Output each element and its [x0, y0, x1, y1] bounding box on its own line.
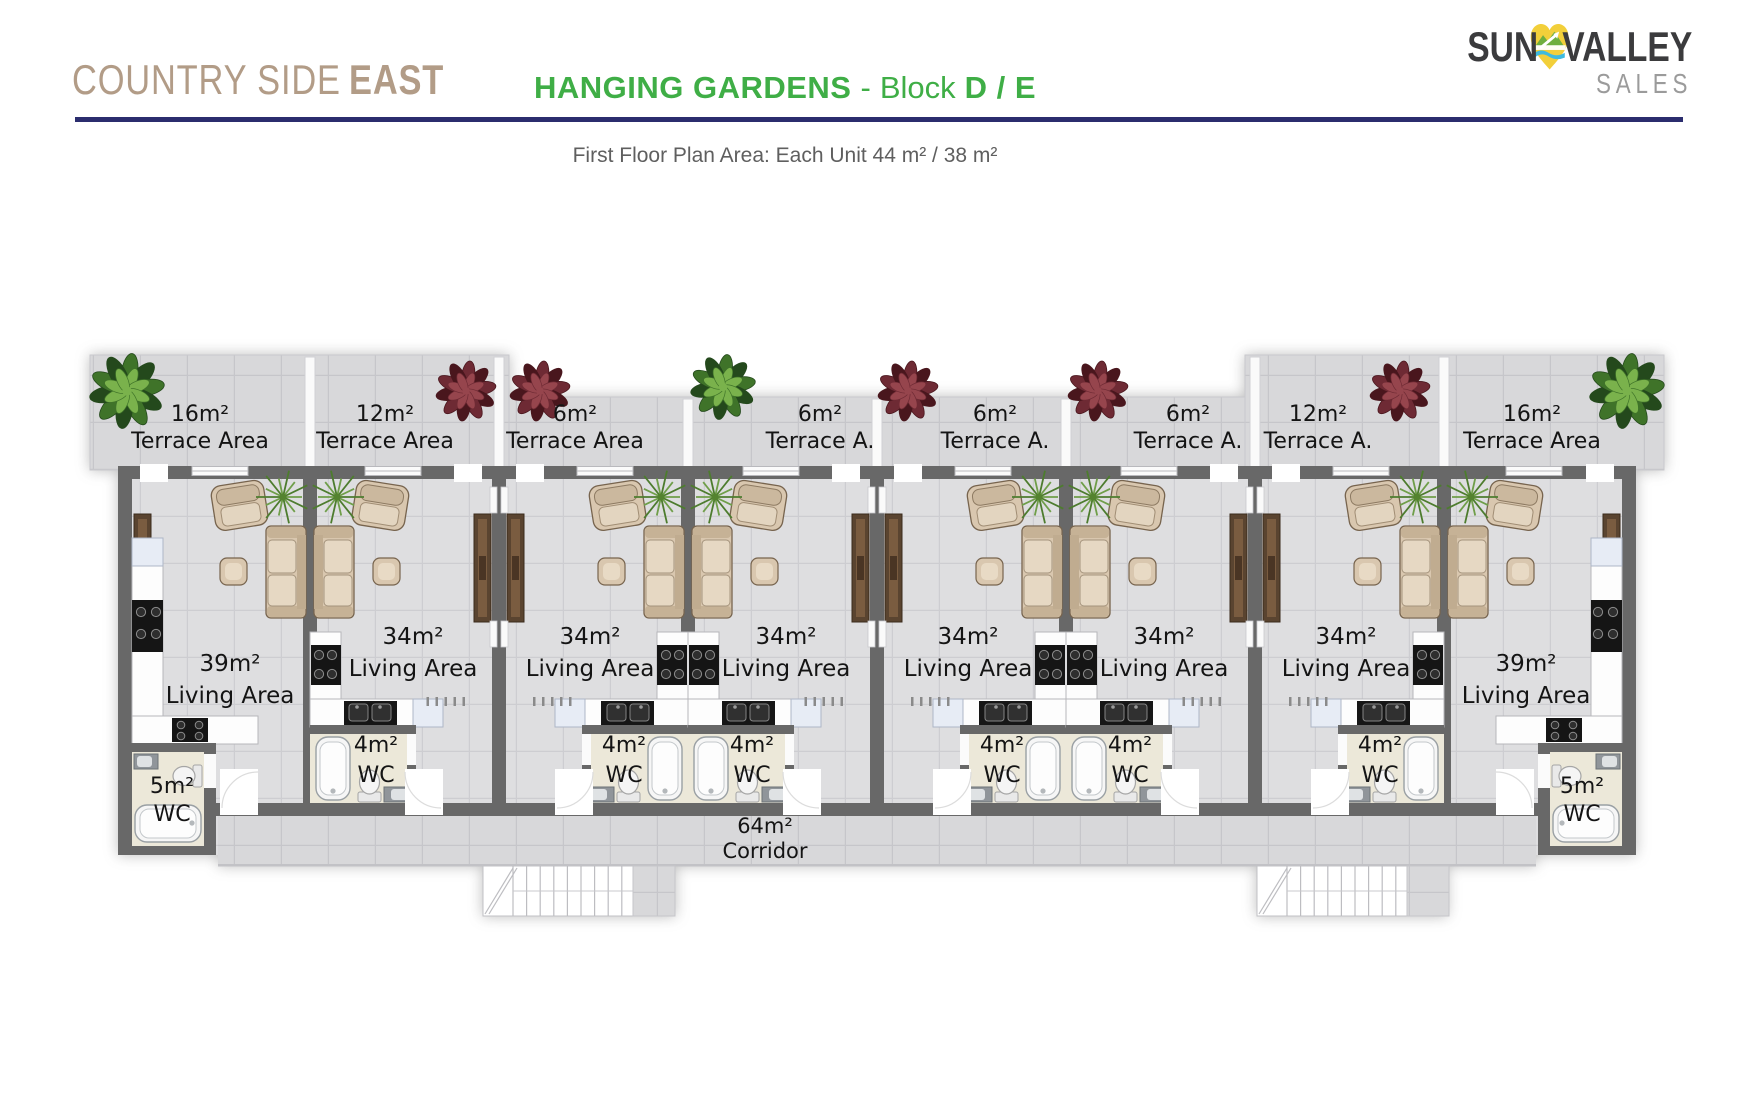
- living-label: Living Area: [1100, 656, 1229, 682]
- window: [365, 467, 421, 476]
- living-label: Living Area: [1462, 683, 1591, 709]
- sideboard: [852, 514, 869, 622]
- side-table-top: [756, 563, 773, 580]
- living-size: 34m²: [560, 624, 621, 650]
- curtain: [501, 621, 508, 647]
- wc-size: 4m²: [730, 733, 774, 758]
- living-size: 34m²: [756, 624, 817, 650]
- window: [743, 467, 799, 476]
- wc-label: WC: [605, 763, 642, 788]
- armchair: [1107, 479, 1166, 532]
- wc-room: [1538, 743, 1636, 855]
- window: [192, 467, 248, 476]
- terrace-door: [894, 464, 922, 482]
- terrace-door: [454, 464, 482, 482]
- living-size: 39m²: [1496, 651, 1557, 677]
- page: COUNTRY SIDEEAST HANGING GARDENS-BlockD …: [0, 0, 1754, 1100]
- wc-label: WC: [1563, 802, 1600, 827]
- terrace-door: [1210, 464, 1238, 482]
- curtain: [501, 487, 508, 513]
- sofa: [314, 526, 354, 618]
- curtain: [868, 621, 875, 647]
- armchair: [1485, 479, 1544, 532]
- armchair: [966, 479, 1025, 532]
- wc-size: 4m²: [354, 733, 398, 758]
- curtain: [1257, 487, 1264, 513]
- terrace-door: [1586, 464, 1614, 482]
- sofa: [692, 526, 732, 618]
- sideboard: [1263, 514, 1280, 622]
- wc-size: 4m²: [602, 733, 646, 758]
- sofa: [1400, 526, 1440, 618]
- sofa: [644, 526, 684, 618]
- terrace-label: Terrace A.: [1133, 429, 1243, 454]
- sideboard: [474, 514, 491, 622]
- terrace-label: Terrace Area: [1462, 429, 1601, 454]
- corridor-size: 64m²: [737, 814, 793, 838]
- living-label: Living Area: [722, 656, 851, 682]
- armchair: [351, 479, 410, 532]
- terrace-size: 6m²: [973, 402, 1017, 427]
- sideboard: [507, 514, 524, 622]
- terrace-label: Terrace A.: [940, 429, 1050, 454]
- window: [1333, 467, 1389, 476]
- terrace-size: 6m²: [553, 402, 597, 427]
- terrace-label: Terrace Area: [505, 429, 644, 454]
- corridor-label: Corridor: [722, 839, 807, 863]
- wc-size: 4m²: [980, 733, 1024, 758]
- side-table-top: [1512, 563, 1529, 580]
- window: [955, 467, 1011, 476]
- living-label: Living Area: [166, 683, 295, 709]
- terrace-size: 6m²: [1166, 402, 1210, 427]
- wc-size: 4m²: [1358, 733, 1402, 758]
- wc-label: WC: [357, 763, 394, 788]
- curtain: [868, 487, 875, 513]
- terrace-door: [516, 464, 544, 482]
- terrace-door: [832, 464, 860, 482]
- living-size: 34m²: [938, 624, 999, 650]
- wc-label: WC: [1111, 763, 1148, 788]
- side-table-top: [603, 563, 620, 580]
- curtain: [1246, 487, 1253, 513]
- window: [577, 467, 633, 476]
- curtain: [490, 487, 497, 513]
- curtain: [879, 487, 886, 513]
- curtain: [490, 621, 497, 647]
- wc-size: 5m²: [1560, 774, 1604, 799]
- armchair: [729, 479, 788, 532]
- sideboard: [885, 514, 902, 622]
- curtain: [1257, 621, 1264, 647]
- armchair: [210, 479, 269, 532]
- armchair: [588, 479, 647, 532]
- wc-label: WC: [733, 763, 770, 788]
- terrace-door: [140, 464, 168, 482]
- armchair: [1344, 479, 1403, 532]
- living-label: Living Area: [349, 656, 478, 682]
- side-table-top: [1134, 563, 1151, 580]
- terrace-door: [1272, 464, 1300, 482]
- living-label: Living Area: [904, 656, 1033, 682]
- terrace-size: 6m²: [798, 402, 842, 427]
- side-table-top: [378, 563, 395, 580]
- terrace-size: 12m²: [1289, 402, 1347, 427]
- living-label: Living Area: [1282, 656, 1411, 682]
- wc-room: [118, 743, 216, 855]
- sideboard: [1230, 514, 1247, 622]
- terrace-label: Terrace A.: [1263, 429, 1373, 454]
- sofa: [1070, 526, 1110, 618]
- terrace-label: Terrace Area: [130, 429, 269, 454]
- terrace-size: 12m²: [356, 402, 414, 427]
- living-size: 34m²: [1316, 624, 1377, 650]
- sofa: [1448, 526, 1488, 618]
- side-table-top: [981, 563, 998, 580]
- wc-label: WC: [983, 763, 1020, 788]
- window: [1506, 467, 1562, 476]
- living-size: 39m²: [200, 651, 261, 677]
- curtain: [1246, 621, 1253, 647]
- side-table-top: [1359, 563, 1376, 580]
- sofa: [266, 526, 306, 618]
- wc-label: WC: [1361, 763, 1398, 788]
- side-table-top: [225, 563, 242, 580]
- wc-size: 5m²: [150, 774, 194, 799]
- terrace-size: 16m²: [1503, 402, 1561, 427]
- terrace-label: Terrace A.: [765, 429, 875, 454]
- sofa: [1022, 526, 1062, 618]
- wc-label: WC: [153, 802, 190, 827]
- window: [1121, 467, 1177, 476]
- living-label: Living Area: [526, 656, 655, 682]
- living-size: 34m²: [1134, 624, 1195, 650]
- terrace-size: 16m²: [171, 402, 229, 427]
- floor-plan: 16m² Terrace Area 12m² Terrace Area 6m² …: [0, 0, 1754, 1100]
- living-size: 34m²: [383, 624, 444, 650]
- terrace-label: Terrace Area: [315, 429, 454, 454]
- curtain: [879, 621, 886, 647]
- wc-size: 4m²: [1108, 733, 1152, 758]
